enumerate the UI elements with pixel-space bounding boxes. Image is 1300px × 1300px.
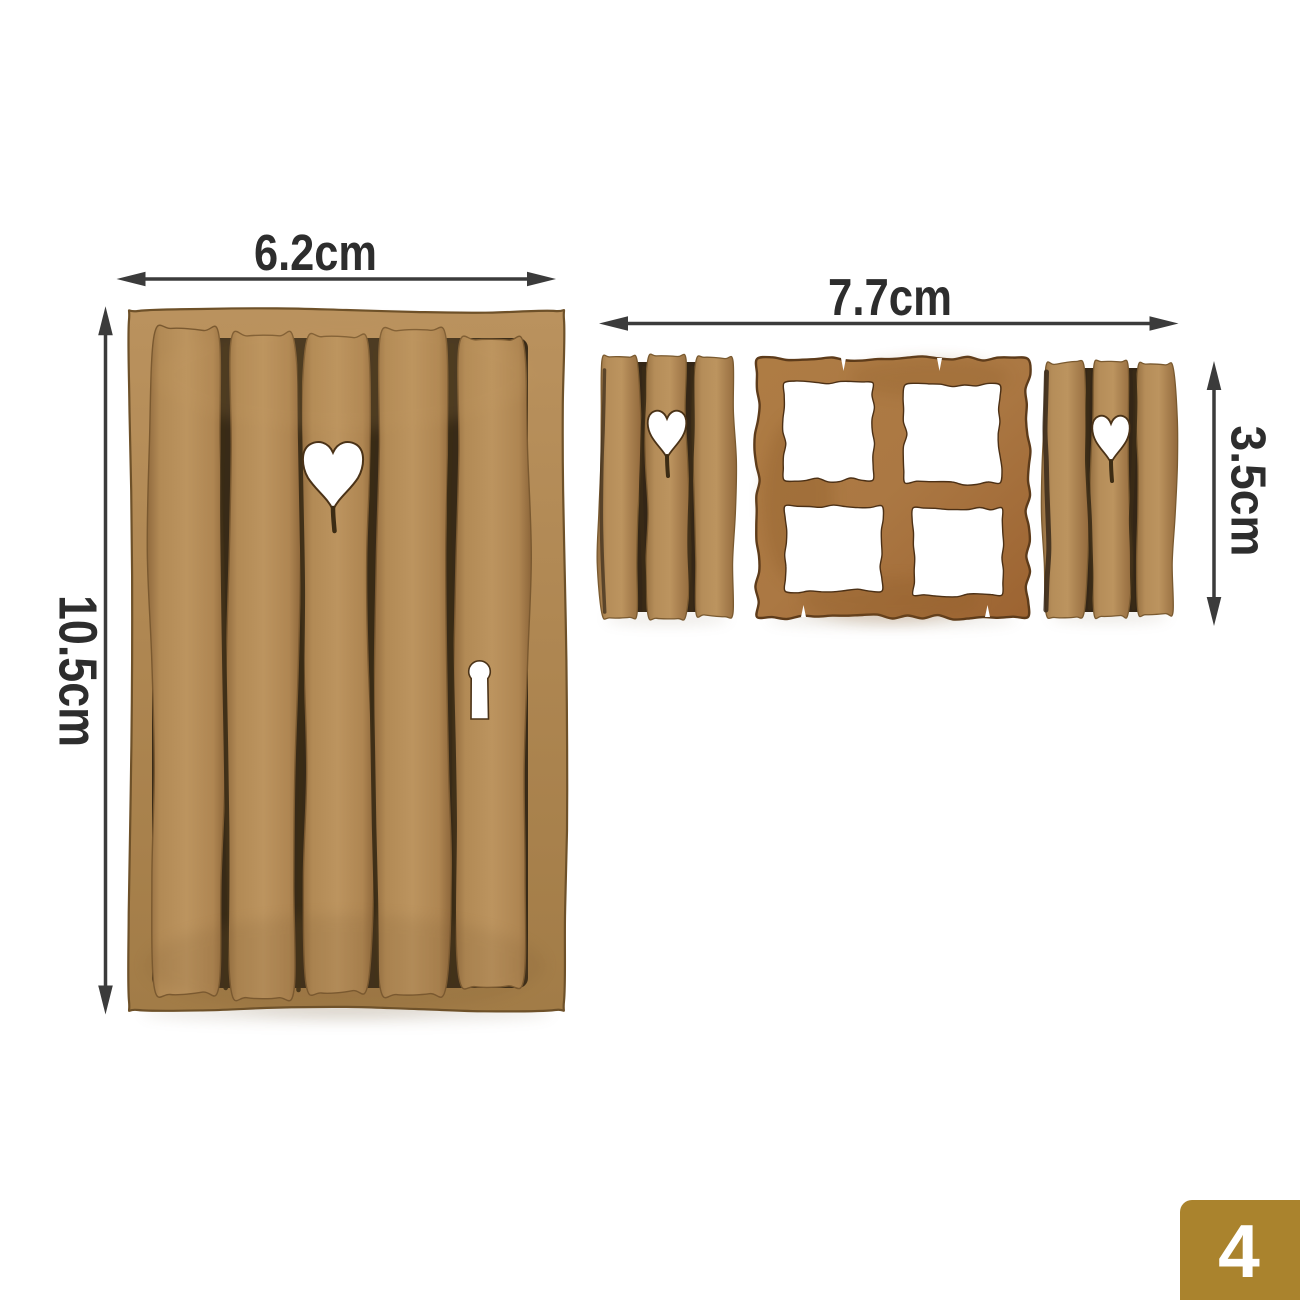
svg-text:3.5cm: 3.5cm — [1221, 426, 1275, 557]
svg-text:6.2cm: 6.2cm — [254, 224, 377, 281]
svg-text:4: 4 — [1218, 1209, 1260, 1293]
svg-text:10.5cm: 10.5cm — [48, 595, 108, 747]
svg-text:7.7cm: 7.7cm — [828, 269, 952, 327]
